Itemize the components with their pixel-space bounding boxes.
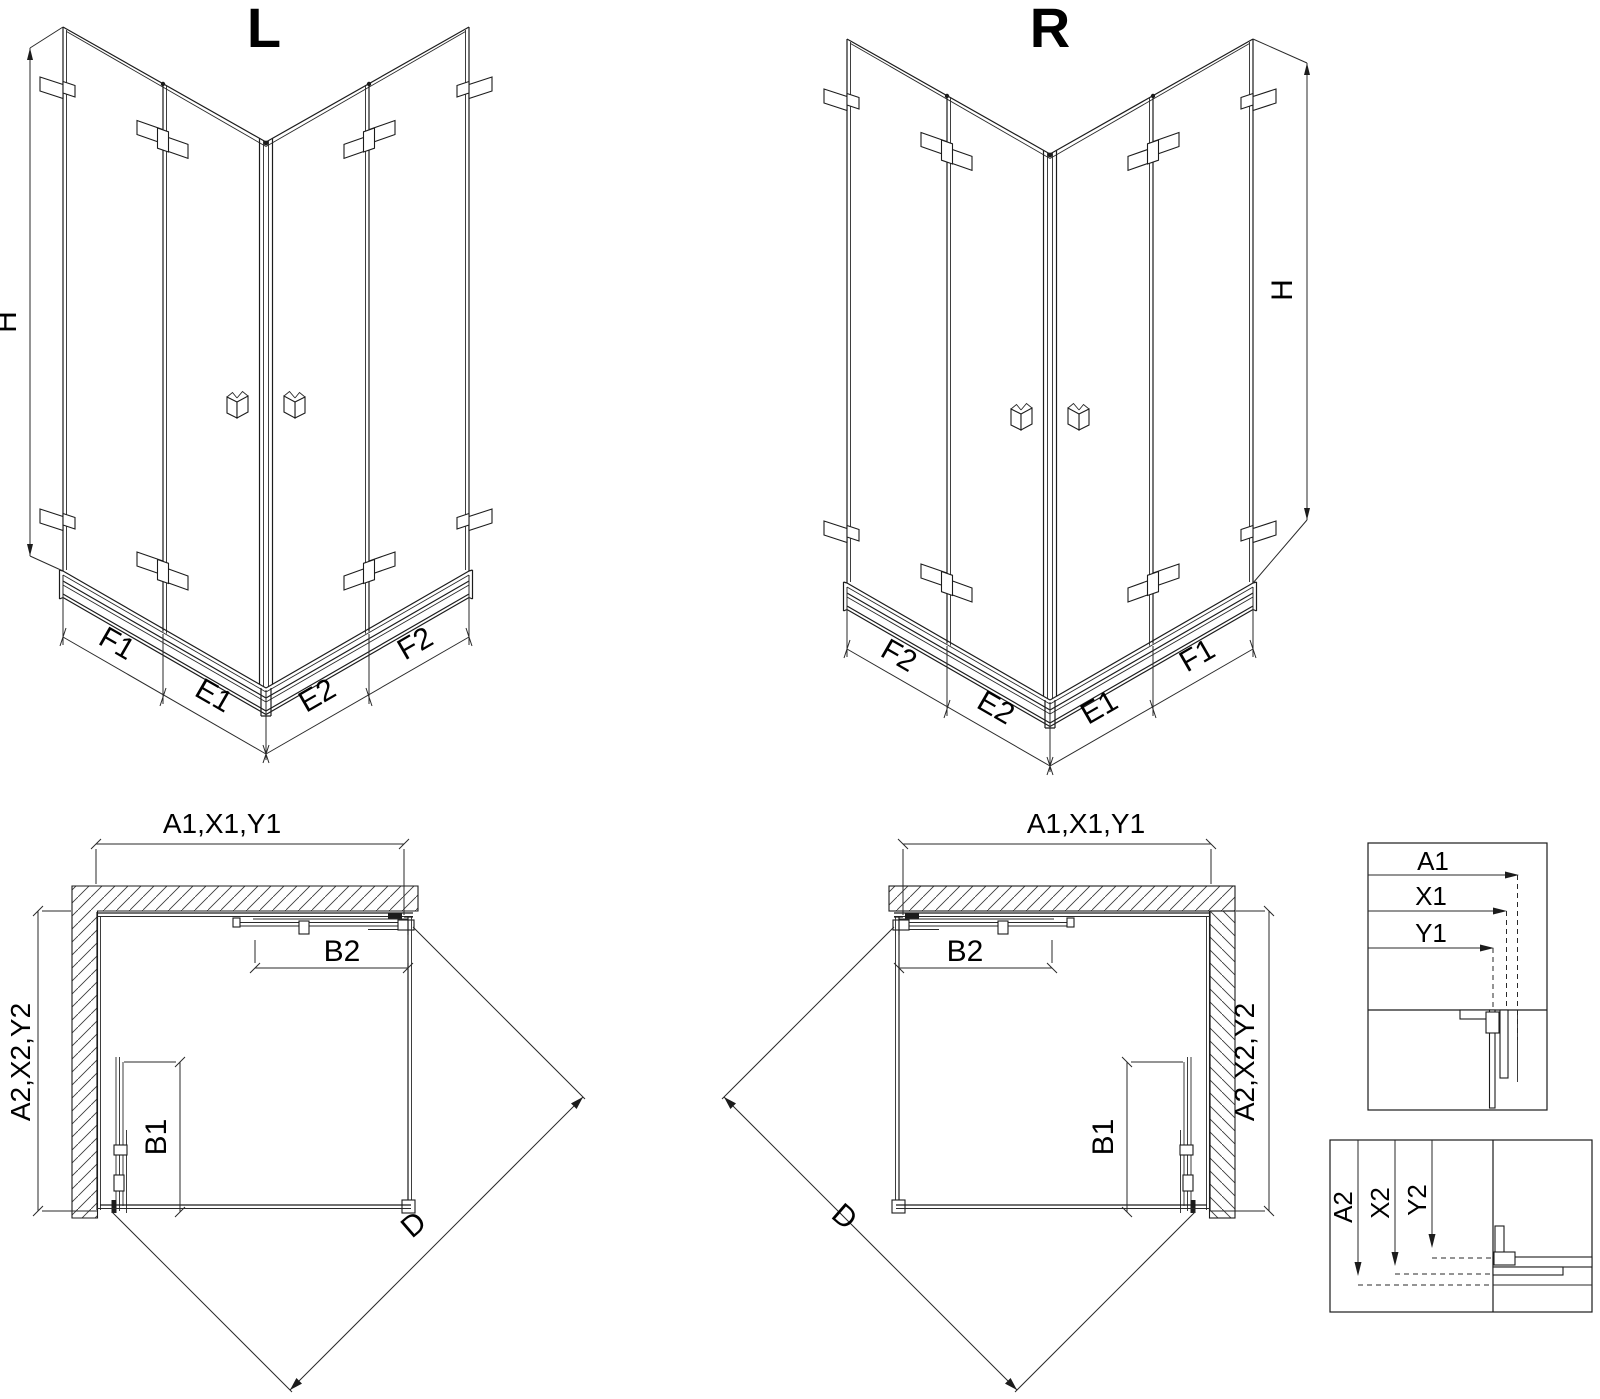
height-dimension: H <box>0 27 63 571</box>
door-b1-label: B1 <box>1087 1119 1120 1156</box>
iso-view-right: R H F2 E2 E1 F1 <box>824 0 1310 775</box>
version-right-label: R <box>1030 0 1070 59</box>
height-dimension: H <box>1253 39 1310 583</box>
detail-x1-label: X1 <box>1415 881 1447 911</box>
segment-e2-label: E2 <box>293 672 341 719</box>
detail-depth-diagram: A2 X2 Y2 <box>1328 1140 1592 1312</box>
wall-profile-section <box>1460 1010 1518 1108</box>
detail-a1-label: A1 <box>1417 846 1449 876</box>
plan-width-label: A1,X1,Y1 <box>1027 808 1145 839</box>
detail-width-diagram: A1 X1 Y1 <box>1368 843 1547 1110</box>
iso-view-left: L H F1 E1 E2 F2 <box>0 0 492 763</box>
detail-y2-label: Y2 <box>1402 1184 1432 1216</box>
version-left-label: L <box>247 0 281 59</box>
drawing-canvas: L H F1 E1 E2 F2 R H F2 E2 E1 F1 A1,X <box>0 0 1600 1399</box>
plan-view-right: A1,X1,Y1 A2,X2,Y2 B2 B1 D <box>722 808 1274 1392</box>
plan-depth-label: A2,X2,Y2 <box>5 1003 36 1121</box>
detail-y1-label: Y1 <box>1415 918 1447 948</box>
segment-f2-label: F2 <box>392 621 439 667</box>
wall-hatch <box>72 886 418 1218</box>
height-label: H <box>1266 279 1299 301</box>
wall-hatch <box>889 886 1235 911</box>
plan-depth-label: A2,X2,Y2 <box>1229 1003 1260 1121</box>
segment-f2-label: F2 <box>875 633 922 679</box>
segment-e2-label: E2 <box>972 684 1020 731</box>
segment-e1-label: E1 <box>190 672 238 719</box>
door-b2-label: B2 <box>324 935 361 968</box>
diagonal-label: D <box>395 1205 433 1244</box>
detail-x2-label: X2 <box>1365 1187 1395 1219</box>
plan-width-label: A1,X1,Y1 <box>163 808 281 839</box>
shower-enclosure-technical-drawing: L H F1 E1 E2 F2 R H F2 E2 E1 F1 A1,X <box>0 0 1600 1399</box>
plan-view-left: A1,X1,Y1 A2,X2,Y2 B2 B1 D <box>5 808 585 1392</box>
wall-profile-section <box>1493 1226 1592 1285</box>
door-b1-label: B1 <box>140 1119 173 1156</box>
door-b2-label: B2 <box>947 935 984 968</box>
height-label: H <box>0 311 23 333</box>
segment-f1-label: F1 <box>93 621 140 667</box>
detail-a2-label: A2 <box>1328 1191 1358 1223</box>
